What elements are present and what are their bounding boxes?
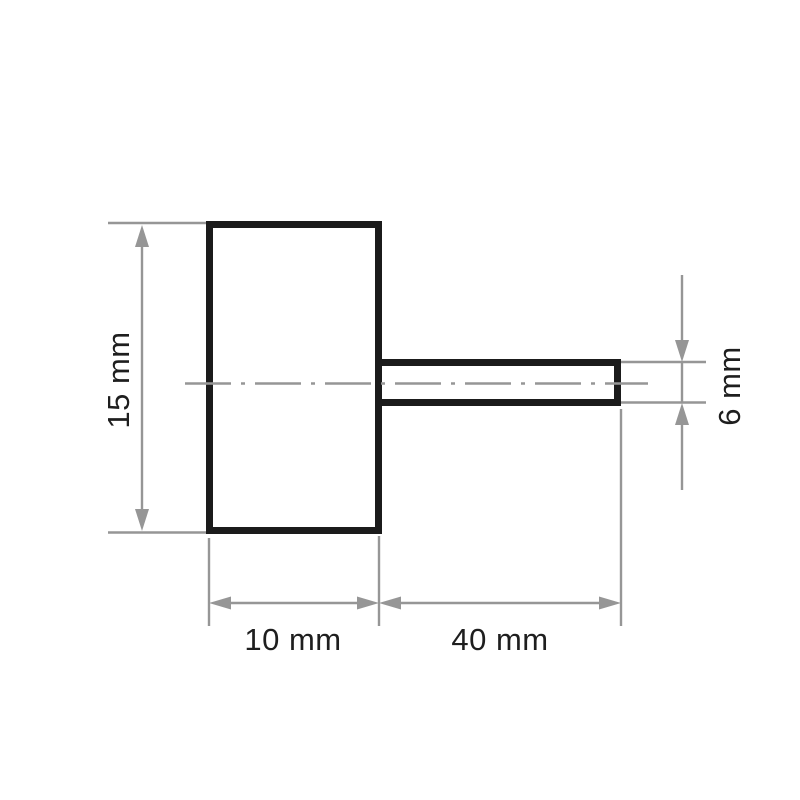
drawing-canvas: 15 mm 10 mm 40 mm 6 mm <box>0 0 800 800</box>
arrow-down-icon <box>135 509 149 531</box>
arrow-up-icon <box>135 225 149 247</box>
dimension-label-body-width: 10 mm <box>244 622 341 657</box>
technical-drawing: 15 mm 10 mm 40 mm 6 mm <box>0 0 800 800</box>
dimension-body-height: 15 mm <box>101 223 206 533</box>
arrow-up-icon <box>675 403 689 425</box>
dimension-label-body-height: 15 mm <box>101 331 136 428</box>
arrow-right-icon <box>357 597 379 610</box>
dimension-label-shaft-diameter: 6 mm <box>712 346 747 426</box>
dimension-label-shaft-length: 40 mm <box>451 622 548 657</box>
arrow-left-icon <box>379 597 401 610</box>
dimension-shaft-length: 40 mm <box>379 409 621 657</box>
arrow-left-icon <box>209 597 231 610</box>
dimension-body-width: 10 mm <box>209 536 379 657</box>
wheel-body-outline <box>210 225 379 531</box>
arrow-right-icon <box>599 597 621 610</box>
part-outline <box>210 225 618 531</box>
arrow-down-icon <box>675 340 689 362</box>
